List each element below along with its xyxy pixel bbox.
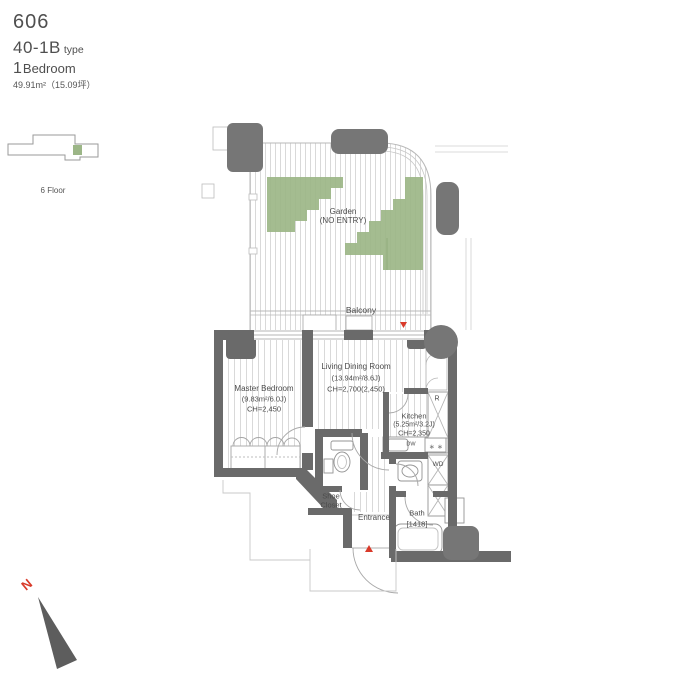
kitchen-ceiling: CH=2,350 (398, 431, 430, 438)
washbasin (398, 461, 422, 481)
garden-no-entry-label: (NO ENTRY) (320, 217, 367, 225)
floorplan-page: ∗ ∗ (0, 0, 687, 687)
plan-type-name: 40-1B (13, 38, 61, 57)
shoe-closet-label-2: Closet (320, 501, 341, 509)
master-bedroom-label: Master Bedroom (234, 385, 293, 393)
bathtub (394, 524, 442, 554)
living-dining-label: Living Dining Room (321, 363, 390, 371)
living-floor-lower (313, 392, 383, 429)
bedroom-column (226, 333, 256, 359)
bath-size: [1418] (407, 520, 428, 528)
hall-floor (352, 492, 389, 512)
master-bedroom-ceiling: CH=2,450 (247, 405, 281, 413)
kitchen-label: Kitchen (401, 412, 426, 420)
bedroom-label: Bedroom (23, 61, 76, 76)
shoe-closet-label-1: Shoe (322, 492, 340, 500)
compass (38, 597, 77, 669)
bedroom-count-line: 1Bedroom (13, 61, 76, 77)
floorplan-drawing: ∗ ∗ (0, 0, 687, 687)
living-dining-ceiling: CH=2,700(2,450) (327, 385, 385, 393)
garden-label: Garden (330, 208, 357, 216)
plan-type-suffix: type (64, 44, 84, 56)
balcony-step-box (346, 316, 372, 330)
windows (254, 330, 424, 340)
plan-type: 40-1Btype (13, 39, 84, 56)
dishwasher-label: DW (406, 442, 415, 448)
washer-label: WD (433, 462, 444, 469)
bedroom-window (254, 330, 302, 340)
compass-needle (38, 597, 77, 669)
building-outline (8, 135, 98, 160)
unit-area: 49.91m²（15.09坪） (13, 81, 96, 90)
kitchen-sink (387, 439, 408, 451)
burner-symbols: ∗ ∗ (429, 443, 443, 451)
balcony-label: Balcony (346, 306, 376, 315)
locator-floor-label: 6 Floor (41, 187, 66, 195)
master-bedroom-size: (9.83m²/6.0J) (242, 395, 287, 403)
wc-hand-basin (324, 459, 333, 473)
bedroom-count: 1 (13, 60, 22, 77)
bath-label: Bath (409, 509, 424, 517)
refrigerator-label: R (434, 396, 439, 403)
living-window-right (373, 330, 424, 340)
kitchen-size: (5.25m²/3.2J) (393, 422, 435, 429)
living-dining-size: (13.94m²/8.6J) (332, 374, 381, 382)
unit-number: 606 (13, 12, 49, 32)
balcony-equipment-box (303, 315, 336, 332)
floor-locator (8, 135, 98, 160)
entrance-label: Entrance (358, 514, 390, 522)
unit-highlight (73, 145, 82, 155)
living-window-left (313, 330, 344, 340)
